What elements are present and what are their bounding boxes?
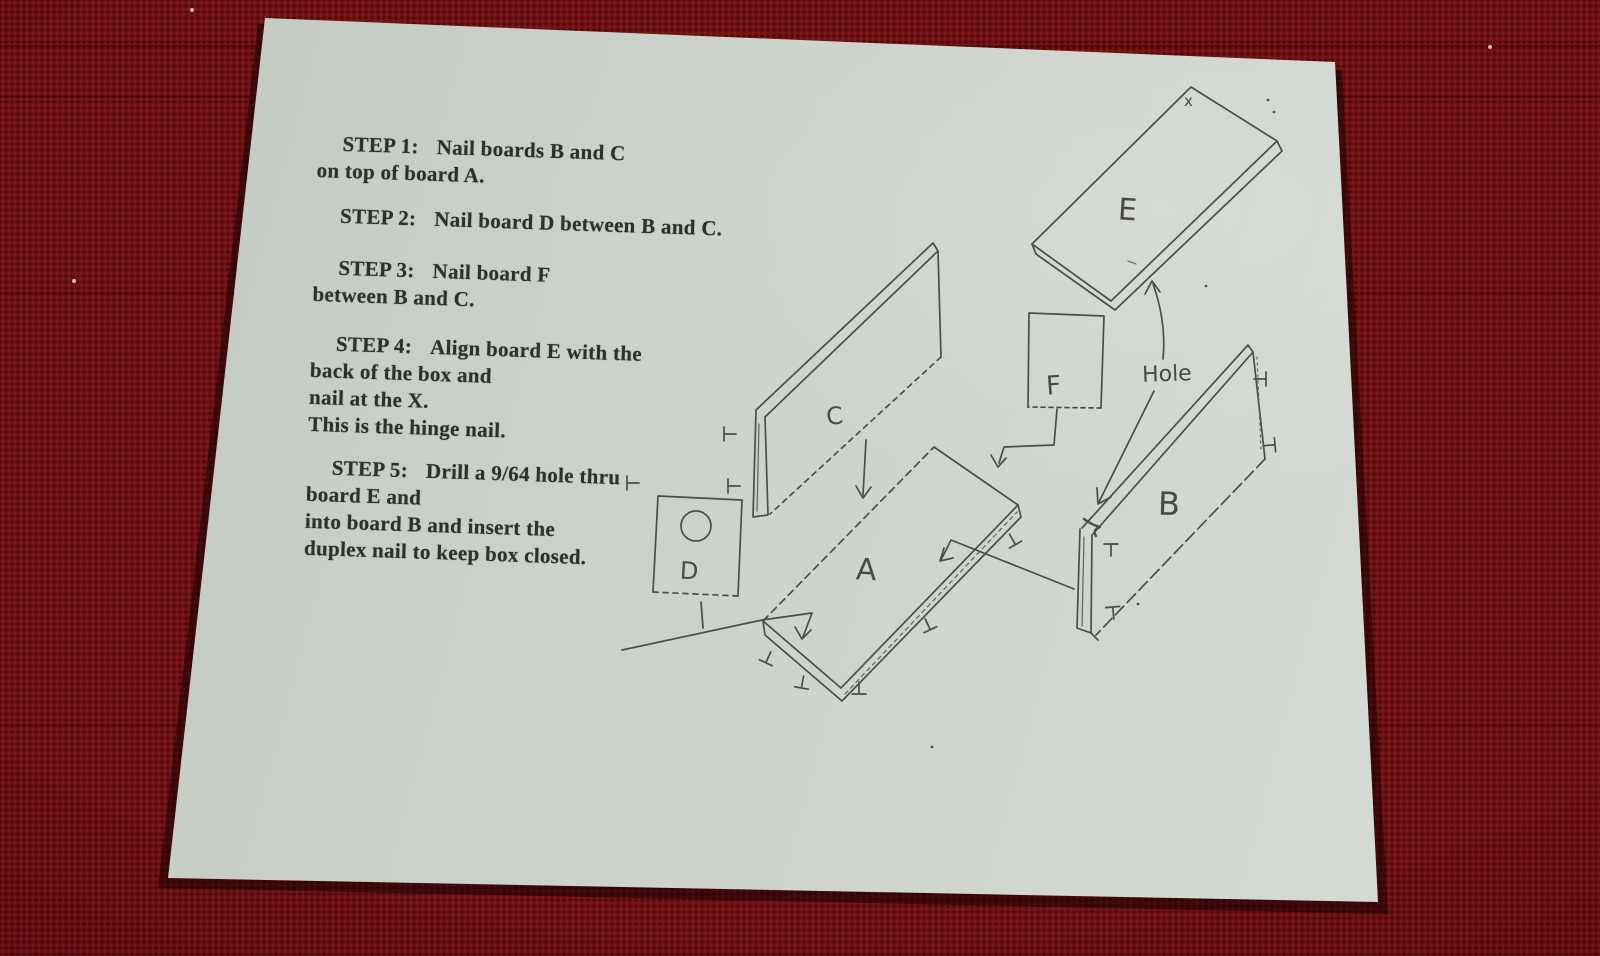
board-f-bottom-edge: [1028, 407, 1101, 408]
board-f-outline: [1028, 313, 1104, 408]
entrance-hole-circle: [681, 511, 711, 541]
board-label-e: E: [1117, 192, 1138, 228]
nail-x-mark: x: [1184, 92, 1193, 110]
connector-d-to-a: [622, 613, 812, 650]
board-b-hole-scribble: [1084, 519, 1100, 536]
nail-mark: [795, 675, 811, 689]
nail-mark: [759, 649, 777, 666]
board-e-hole-mark: [1128, 261, 1136, 264]
board-c-top-edge: [756, 243, 938, 417]
board-c-left-end: [753, 410, 768, 517]
photo-scene: STEP 1:Nail boards B and C on top of boa…: [0, 0, 1600, 956]
stray-dot: [1267, 99, 1270, 102]
board-label-f: F: [1045, 371, 1062, 402]
board-c-drawing: C: [753, 243, 941, 517]
board-a-top-left-edge: [763, 447, 934, 621]
connector-f-to-a: [999, 409, 1057, 463]
board-label-d: D: [679, 557, 699, 586]
board-c-right-edge: [938, 251, 941, 357]
board-label-c: C: [825, 401, 845, 431]
dust-speck: [72, 279, 76, 283]
hole-arrow-to-e: [1153, 284, 1164, 359]
nail-mark: [728, 479, 740, 493]
nail-mark: [1104, 544, 1118, 556]
hole-arrow-to-b: [1099, 391, 1154, 502]
nail-marks: [627, 372, 1276, 694]
stray-dot: [931, 746, 934, 749]
connector-f-to-a-head: [991, 455, 1006, 467]
board-e-thickness: [1032, 141, 1282, 310]
dust-speck: [190, 8, 194, 12]
board-c-end-grain: [757, 424, 759, 511]
board-b-left-end: [1077, 529, 1098, 640]
board-c-bottom-edge: [770, 357, 941, 514]
stray-dot: [1205, 285, 1208, 288]
hole-label: Hole: [1142, 361, 1192, 388]
board-a-thickness: [763, 505, 1021, 701]
board-b-end-grain: [1082, 537, 1084, 626]
board-d-drawing: D: [622, 496, 812, 650]
dust-speck: [1488, 45, 1492, 49]
arrow-c-to-a: [863, 440, 866, 495]
nail-mark: [627, 476, 639, 490]
stray-dot: [1273, 111, 1276, 114]
board-label-a: A: [855, 552, 878, 588]
hole-annotation: Hole: [1097, 281, 1192, 504]
board-f-drawing: F: [991, 313, 1104, 467]
board-d-bottom-edge: [653, 592, 738, 596]
hole-arrow-to-e-head: [1145, 281, 1160, 294]
board-a-thickness-grain: [845, 512, 1017, 694]
nail-mark: [724, 427, 736, 441]
board-label-b: B: [1157, 485, 1180, 524]
board-e-drawing: E x: [1032, 87, 1282, 310]
connector-d-to-a-head: [795, 627, 811, 639]
connector-d-drop: [701, 602, 703, 628]
board-b-drawing: B: [931, 345, 1265, 748]
stray-dot: [1137, 603, 1140, 606]
board-e-outline: [1032, 87, 1277, 301]
nail-mark: [1106, 606, 1121, 619]
